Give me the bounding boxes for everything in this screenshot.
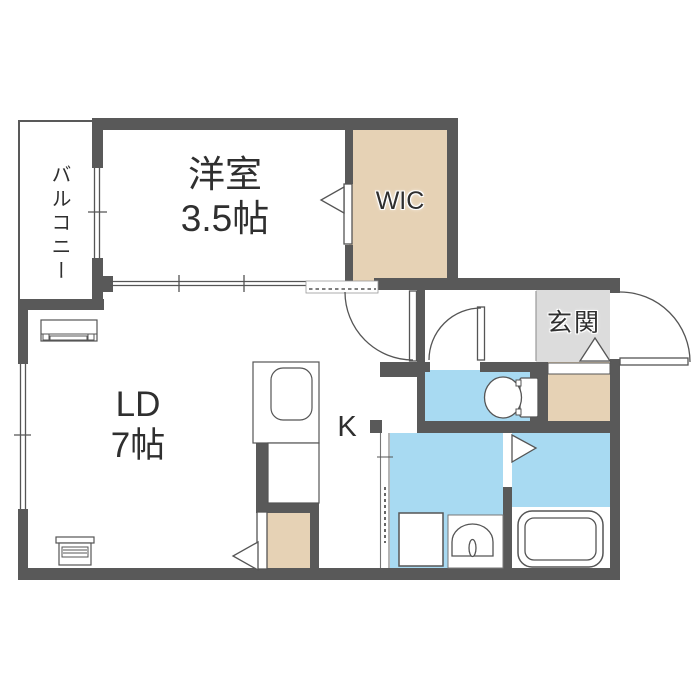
entrance-closet-floor	[546, 362, 610, 423]
room-toilet-floor	[423, 370, 530, 423]
entrance-label: 玄関	[538, 303, 610, 339]
wall	[374, 278, 620, 290]
wall	[447, 118, 458, 290]
ld-closet-door-icon	[233, 512, 267, 570]
balcony-label: バルコニー	[42, 149, 74, 299]
wall	[610, 359, 620, 580]
wall	[417, 421, 620, 433]
window-icon	[14, 364, 31, 509]
living-dining-size: 7帖	[55, 425, 221, 466]
wall	[256, 503, 319, 513]
wall	[310, 513, 319, 568]
air-conditioner-icon	[41, 320, 97, 341]
wall	[18, 299, 28, 364]
wall	[530, 362, 548, 423]
wall	[256, 442, 268, 504]
living-dining-name: LD	[55, 384, 221, 425]
wic-label: WIC	[352, 187, 448, 216]
wall	[370, 420, 382, 433]
wall	[503, 487, 512, 568]
washroom-partition	[380, 433, 390, 568]
wall	[92, 118, 458, 130]
wall	[18, 299, 104, 310]
western-room-label: 洋室 3.5帖	[105, 153, 345, 240]
entrance-door-swing-icon	[620, 292, 690, 365]
bathtub-area-floor	[512, 507, 610, 568]
living-dining-label: LD 7帖	[55, 384, 221, 467]
wall	[345, 245, 353, 282]
floor-plan: バルコニー 洋室 3.5帖 WIC 玄関 LD 7帖 K	[0, 0, 700, 700]
heater-icon	[56, 537, 94, 565]
kitchen-label: K	[330, 411, 364, 444]
wall	[380, 362, 417, 377]
hall-door-swing-icon	[345, 291, 417, 361]
western-room-size: 3.5帖	[105, 197, 345, 241]
western-room-name: 洋室	[105, 153, 345, 197]
wall	[417, 362, 430, 372]
wall	[610, 278, 620, 293]
wall	[103, 276, 113, 292]
wall	[92, 118, 103, 168]
wall	[18, 568, 620, 580]
wall	[345, 124, 353, 184]
sliding-door-icon	[110, 275, 378, 293]
room-washroom-floor	[382, 433, 503, 568]
ld-closet-floor	[267, 513, 310, 568]
toilet-door-swing-icon	[429, 307, 485, 360]
